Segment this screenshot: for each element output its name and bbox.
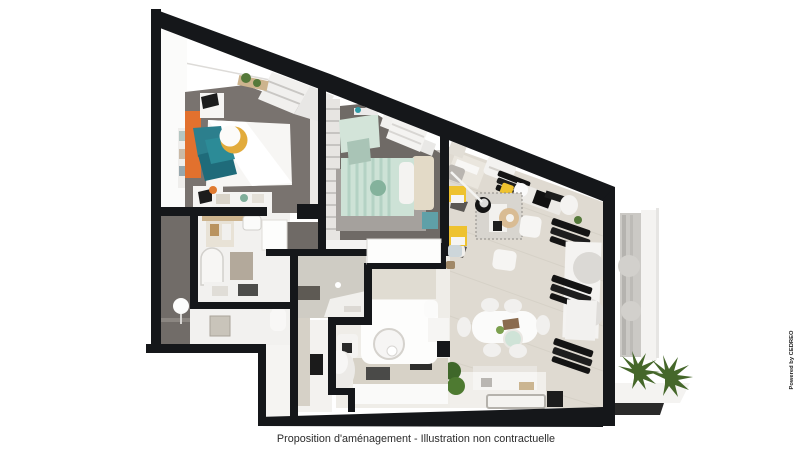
svg-text:Proposition d'aménagement - Il: Proposition d'aménagement - Illustration… <box>277 433 555 445</box>
svg-text:Powered by CEDREO: Powered by CEDREO <box>789 330 795 389</box>
